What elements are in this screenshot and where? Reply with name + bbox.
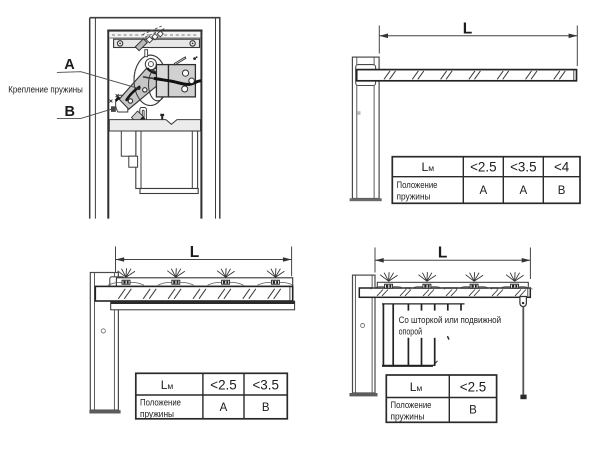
svg-text:<4: <4 (554, 159, 570, 174)
svg-text:опорой: опорой (399, 326, 423, 336)
svg-text:Положение: Положение (391, 400, 432, 410)
svg-text:Положение: Положение (397, 180, 438, 190)
svg-text:пружины: пружины (391, 412, 425, 422)
svg-text:L: L (463, 20, 472, 37)
svg-text:A: A (519, 185, 527, 197)
svg-text:B: B (558, 185, 566, 197)
svg-text:B: B (262, 402, 270, 414)
svg-text:A: A (479, 185, 487, 197)
svg-text:<2.5: <2.5 (460, 380, 486, 395)
svg-text:A: A (220, 402, 228, 414)
svg-text:B: B (65, 104, 75, 120)
svg-text:пружины: пружины (397, 192, 431, 202)
svg-text:<3.5: <3.5 (252, 377, 278, 392)
svg-text:Lм: Lм (422, 160, 435, 174)
svg-text:L: L (438, 245, 447, 262)
svg-text:<2.5: <2.5 (470, 159, 496, 174)
svg-text:Крепление пружины: Крепление пружины (8, 85, 83, 95)
svg-text:Lм: Lм (161, 378, 174, 392)
svg-text:<3.5: <3.5 (510, 159, 536, 174)
svg-text:пружины: пружины (140, 409, 174, 419)
svg-text:Со шторкой или подвижной: Со шторкой или подвижной (399, 315, 502, 325)
svg-text:A: A (64, 57, 75, 73)
svg-text:<2.5: <2.5 (210, 377, 236, 392)
svg-text:L: L (190, 244, 199, 261)
svg-text:Lм: Lм (410, 380, 423, 394)
svg-text:B: B (469, 405, 477, 417)
svg-text:Положение: Положение (140, 398, 181, 408)
